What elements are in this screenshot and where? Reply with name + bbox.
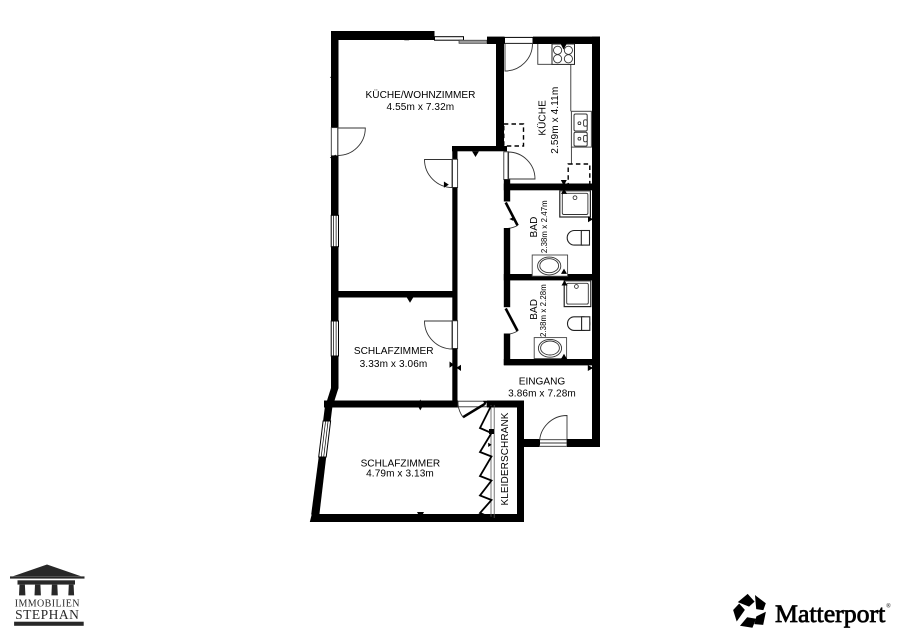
svg-text:BAD: BAD xyxy=(529,217,540,238)
svg-text:3.33m x 3.06m: 3.33m x 3.06m xyxy=(360,359,428,370)
svg-text:®: ® xyxy=(886,603,891,610)
svg-text:2.59m x 4.11m: 2.59m x 4.11m xyxy=(550,87,561,154)
svg-text:SCHLAFZIMMER: SCHLAFZIMMER xyxy=(354,346,434,357)
svg-text:KÜCHE/WOHNZIMMER: KÜCHE/WOHNZIMMER xyxy=(366,89,476,101)
svg-text:4.79m x 3.13m: 4.79m x 3.13m xyxy=(366,468,434,479)
svg-text:4.55m x 7.32m: 4.55m x 7.32m xyxy=(387,102,455,113)
svg-text:EINGANG: EINGANG xyxy=(519,377,566,388)
svg-text:KLEIDERSCHRANK: KLEIDERSCHRANK xyxy=(500,412,511,505)
svg-text:2.38m x 2.28m: 2.38m x 2.28m xyxy=(539,284,548,337)
svg-text:2.38m x 2.47m: 2.38m x 2.47m xyxy=(540,200,549,253)
svg-text:Matterport: Matterport xyxy=(775,599,886,628)
svg-text:3.86m x 7.28m: 3.86m x 7.28m xyxy=(508,389,576,400)
svg-text:STEPHAN: STEPHAN xyxy=(15,607,79,622)
svg-text:KÜCHE: KÜCHE xyxy=(537,100,549,136)
